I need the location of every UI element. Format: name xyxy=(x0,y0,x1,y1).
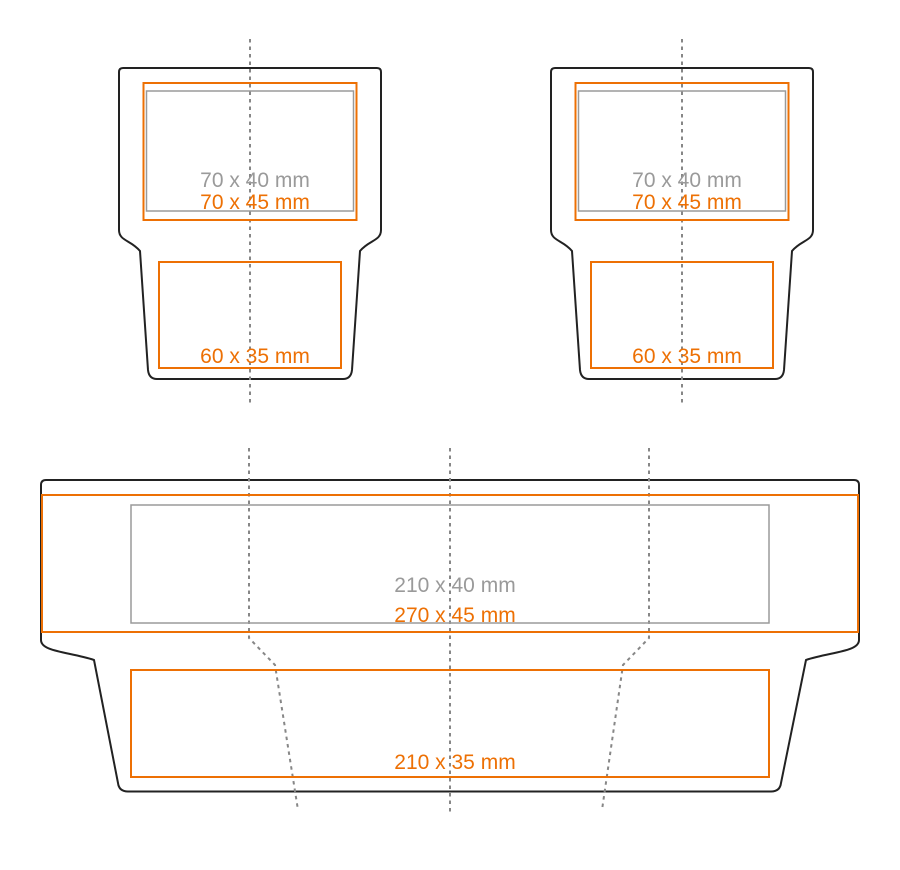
dieline-diagram-svg: 70 x 40 mm 70 x 45 mm 60 x 35 mm 70 x 40… xyxy=(0,0,900,870)
print-size-label-lower: 60 x 35 mm xyxy=(632,345,742,368)
dieline-sheet: 70 x 40 mm 70 x 45 mm 60 x 35 mm 70 x 40… xyxy=(0,0,900,870)
panel-large: 210 x 40 mm 270 x 45 mm 210 x 35 mm xyxy=(41,448,859,812)
print-size-label-orange: 270 x 45 mm xyxy=(394,604,515,627)
print-size-label-lower: 210 x 35 mm xyxy=(394,751,515,774)
print-size-label-gray: 70 x 40 mm xyxy=(632,169,742,192)
print-size-label-gray: 210 x 40 mm xyxy=(394,574,515,597)
print-size-label-orange: 70 x 45 mm xyxy=(200,191,310,214)
panel-small-left: 70 x 40 mm 70 x 45 mm 60 x 35 mm xyxy=(119,39,381,404)
right-fold-line xyxy=(602,448,649,810)
left-fold-line xyxy=(249,448,298,810)
print-size-label-lower: 60 x 35 mm xyxy=(200,345,310,368)
panel-small-right: 70 x 40 mm 70 x 45 mm 60 x 35 mm xyxy=(551,39,813,404)
print-size-label-orange: 70 x 45 mm xyxy=(632,191,742,214)
print-size-label-gray: 70 x 40 mm xyxy=(200,169,310,192)
